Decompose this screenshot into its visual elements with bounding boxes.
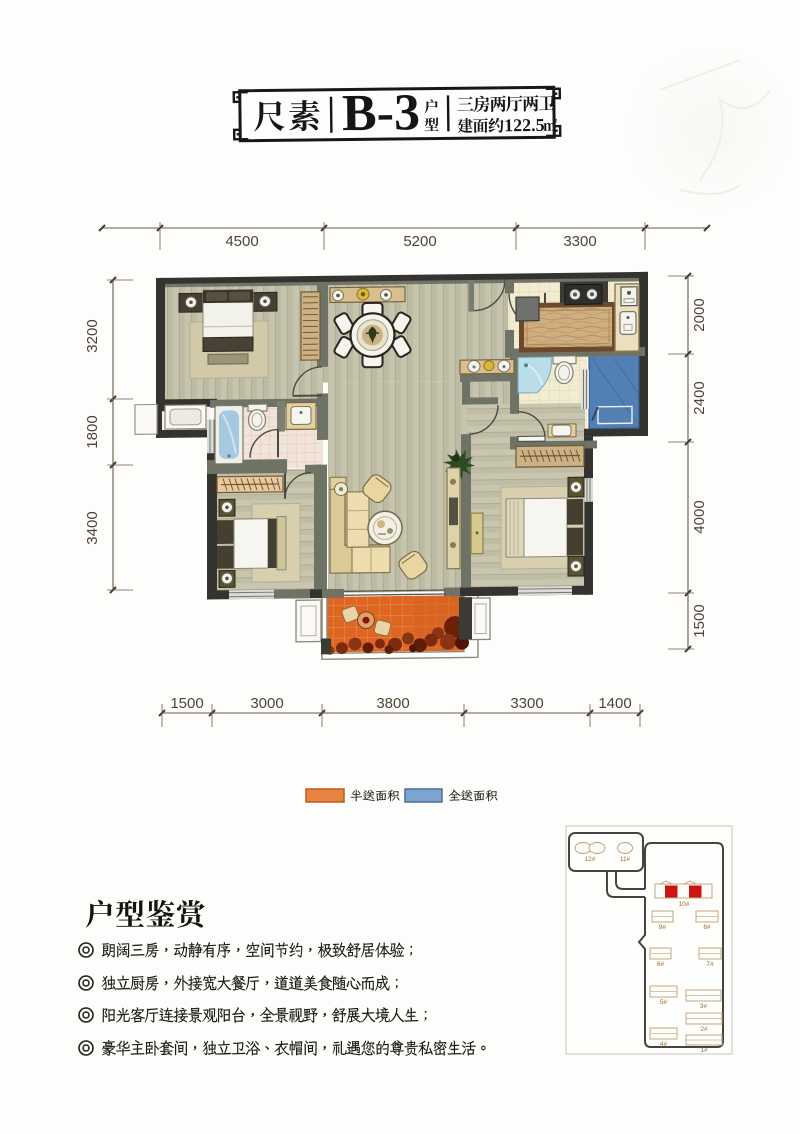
svg-text:5200: 5200 (403, 233, 436, 250)
svg-text:3000: 3000 (250, 695, 283, 712)
svg-text:6#: 6# (657, 961, 665, 968)
svg-text:2#: 2# (700, 1026, 708, 1033)
svg-text:4#: 4# (660, 1041, 668, 1048)
svg-text:3400: 3400 (84, 511, 101, 544)
svg-text:5#: 5# (660, 999, 668, 1006)
svg-text:1500: 1500 (691, 604, 708, 637)
svg-text:1800: 1800 (84, 415, 101, 448)
svg-text:11#: 11# (620, 856, 631, 863)
svg-text:3800: 3800 (376, 695, 409, 712)
svg-text:4500: 4500 (225, 233, 258, 250)
svg-text:3#: 3# (700, 1003, 708, 1010)
svg-text:3300: 3300 (563, 233, 596, 250)
svg-text:3200: 3200 (84, 319, 101, 352)
svg-text:1500: 1500 (170, 695, 203, 712)
svg-text:1400: 1400 (598, 695, 631, 712)
svg-text:1#: 1# (700, 1047, 708, 1054)
svg-text:3300: 3300 (510, 695, 543, 712)
svg-text:2000: 2000 (691, 298, 708, 331)
svg-text:10#: 10# (679, 901, 690, 908)
svg-text:2400: 2400 (691, 381, 708, 414)
svg-text:4000: 4000 (691, 500, 708, 533)
svg-text:8#: 8# (703, 924, 711, 931)
svg-text:12#: 12# (585, 856, 596, 863)
svg-text:9#: 9# (659, 924, 667, 931)
svg-text:7#: 7# (706, 961, 714, 968)
